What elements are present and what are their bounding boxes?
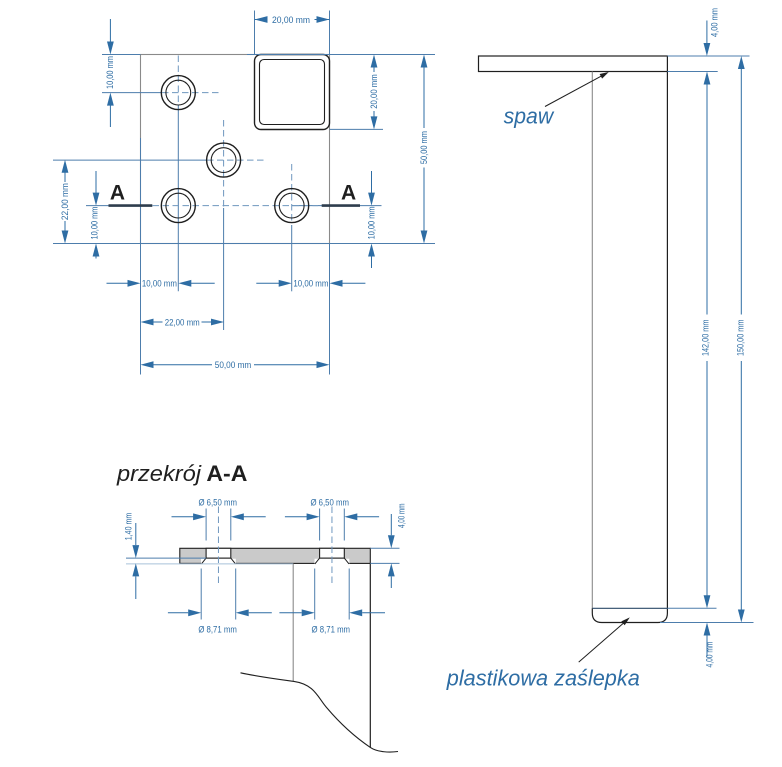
svg-text:22,00 mm: 22,00 mm bbox=[165, 317, 200, 327]
svg-text:Ø 6,50 mm: Ø 6,50 mm bbox=[310, 498, 349, 508]
svg-text:10,00 mm: 10,00 mm bbox=[90, 207, 100, 240]
svg-text:22,00 mm: 22,00 mm bbox=[60, 183, 70, 220]
svg-text:A: A bbox=[341, 182, 356, 205]
svg-text:4,00 mm: 4,00 mm bbox=[705, 642, 715, 668]
svg-text:10,00 mm: 10,00 mm bbox=[366, 206, 376, 239]
svg-text:A: A bbox=[110, 182, 125, 205]
svg-text:20,00 mm: 20,00 mm bbox=[272, 15, 310, 25]
svg-text:20,00 mm: 20,00 mm bbox=[369, 74, 379, 109]
svg-text:50,00 mm: 50,00 mm bbox=[215, 360, 252, 370]
svg-text:10,00 mm: 10,00 mm bbox=[105, 56, 115, 89]
svg-text:spaw: spaw bbox=[504, 103, 556, 128]
svg-text:10,00 mm: 10,00 mm bbox=[293, 279, 328, 289]
svg-text:plastikowa zaślepka: plastikowa zaślepka bbox=[446, 666, 640, 691]
svg-text:150,00 mm: 150,00 mm bbox=[736, 320, 746, 357]
svg-text:4,00 mm: 4,00 mm bbox=[710, 8, 720, 37]
svg-text:przekrójA-A: przekrójA-A bbox=[116, 461, 247, 486]
svg-text:Ø 6,50 mm: Ø 6,50 mm bbox=[198, 498, 237, 508]
svg-text:50,00 mm: 50,00 mm bbox=[419, 131, 429, 164]
svg-text:4,00 mm: 4,00 mm bbox=[397, 503, 407, 528]
svg-text:10,00 mm: 10,00 mm bbox=[142, 279, 177, 289]
svg-text:Ø 8,71 mm: Ø 8,71 mm bbox=[312, 625, 351, 635]
svg-text:1,40 mm: 1,40 mm bbox=[124, 513, 134, 541]
svg-text:Ø 8,71 mm: Ø 8,71 mm bbox=[198, 625, 237, 635]
svg-text:142,00 mm: 142,00 mm bbox=[700, 320, 710, 357]
